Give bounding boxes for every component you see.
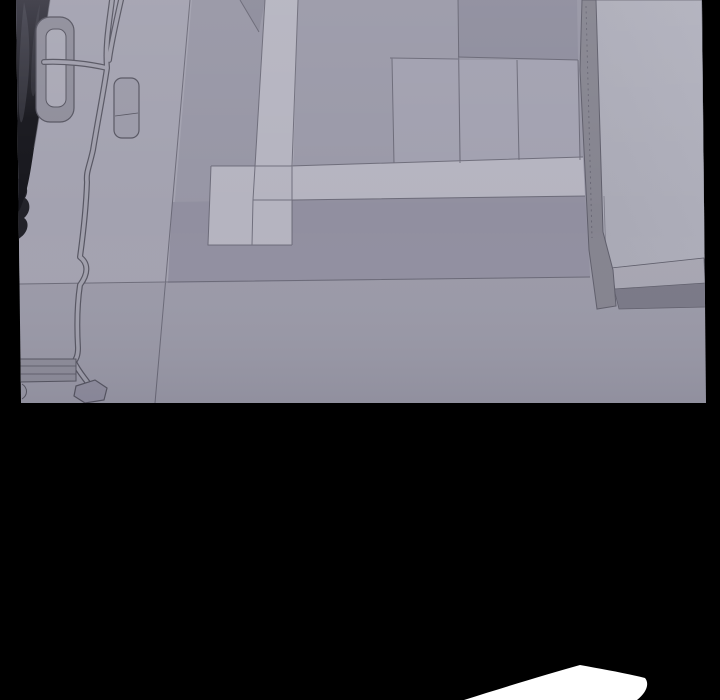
comic-page [0,0,720,700]
panel-shading-overlay [10,0,710,405]
comic-panel-image [0,0,720,700]
panel-artwork [10,0,710,405]
